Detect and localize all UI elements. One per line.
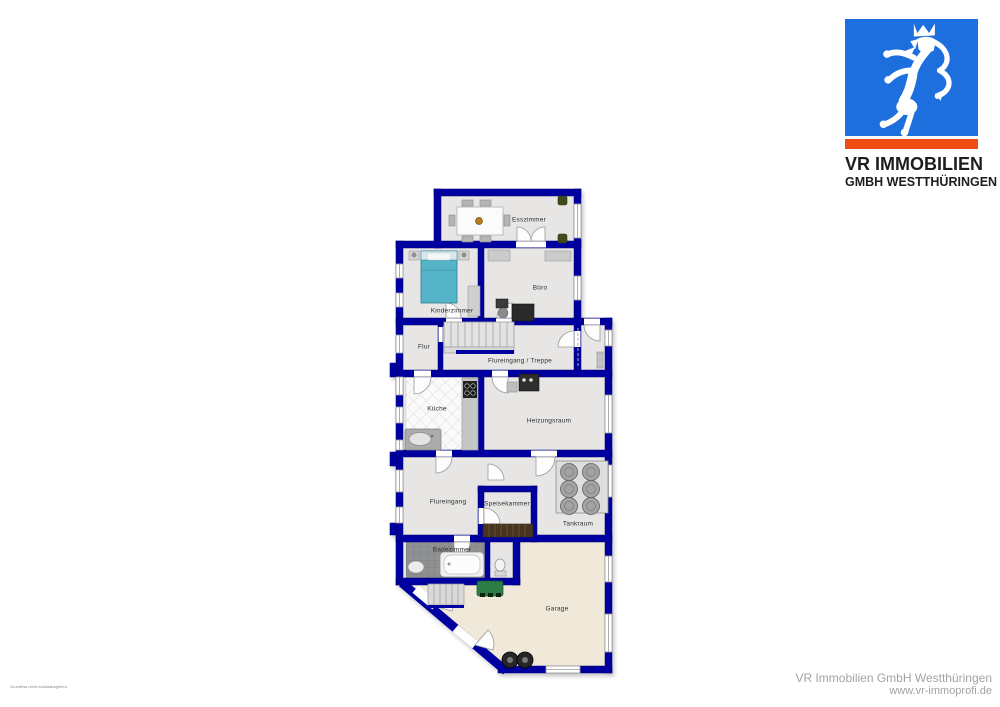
garage-stairs-icon bbox=[428, 584, 464, 608]
footer-website: www.vr-immoprofi.de bbox=[795, 685, 992, 698]
stairs-icon bbox=[444, 322, 514, 354]
room-label-esszimmer: Esszimmer bbox=[512, 217, 546, 224]
room-label-flureingang-treppe: Flureingang / Treppe bbox=[488, 358, 552, 365]
tank-icon bbox=[556, 461, 608, 515]
room-label-kueche: Küche bbox=[427, 406, 446, 413]
toilet-icon bbox=[495, 559, 506, 576]
room-label-kinderzimmer: Kinderzimmer bbox=[431, 308, 474, 315]
room-label-flureingang: Flureingang bbox=[430, 499, 467, 506]
room-label-buero: Büro bbox=[533, 285, 548, 292]
footer: VR Immobilien GmbH Westthüringen www.vr-… bbox=[795, 671, 992, 698]
bath-sink-icon bbox=[408, 561, 424, 573]
room-label-speisekammer: Speisekammer bbox=[484, 501, 530, 508]
room-label-badezimmer: Badezimmer bbox=[433, 547, 471, 554]
cellar-stairs-icon bbox=[483, 524, 533, 537]
room-label-garage: Garage bbox=[546, 606, 569, 613]
page: VR IMMOBILIEN GMBH WESTTHÜRINGEN bbox=[0, 0, 1000, 707]
disclaimer-text: Grundriss nicht maßstabsgetreu bbox=[10, 684, 67, 689]
room-label-tankraum: Tankraum bbox=[563, 521, 593, 528]
room-label-flur: Flur bbox=[418, 344, 430, 351]
stove-icon bbox=[463, 381, 477, 398]
radiator-icon bbox=[597, 352, 603, 368]
floor-plan: Esszimmer Kinderzimmer Büro Flur Flurein… bbox=[0, 0, 1000, 707]
office-chair-icon bbox=[498, 308, 508, 318]
room-label-heizungsraum: Heizungsraum bbox=[527, 418, 571, 425]
bathtub-icon bbox=[440, 552, 484, 577]
sink-icon bbox=[405, 429, 441, 450]
lawnmower-icon bbox=[477, 581, 503, 597]
footer-company: VR Immobilien GmbH Westthüringen bbox=[795, 671, 992, 685]
